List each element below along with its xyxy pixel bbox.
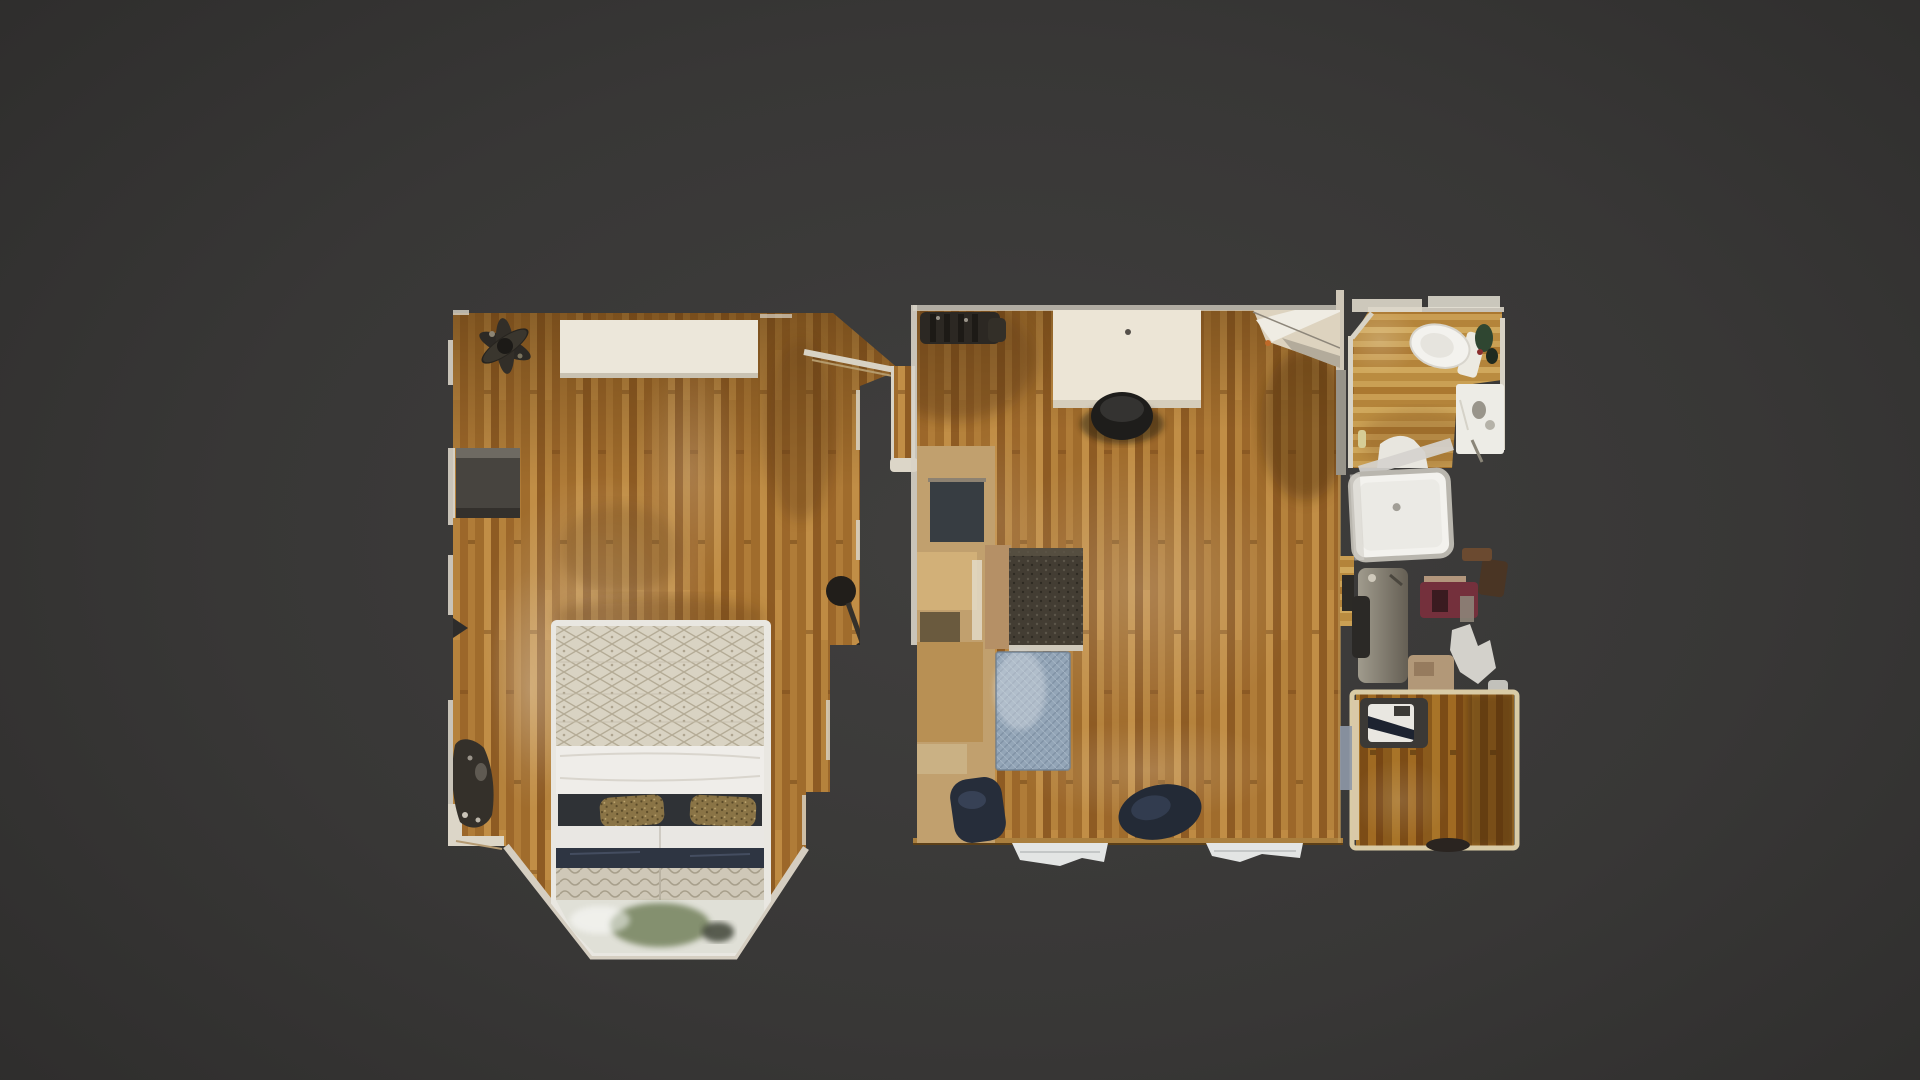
sewing-machine — [1368, 704, 1414, 742]
armchair — [985, 545, 1083, 651]
scan-fragments — [1408, 548, 1508, 702]
floor-mat — [1360, 698, 1428, 748]
bathtub — [1350, 469, 1452, 560]
hanging-clothes — [1420, 576, 1478, 622]
queen-bed — [551, 620, 771, 956]
accent-pillow-right — [689, 794, 756, 827]
walkin-left-trim — [1352, 700, 1359, 840]
dresser-shadow — [560, 373, 758, 378]
accent-pillow-left — [599, 794, 665, 828]
blue-fragment — [1340, 726, 1352, 790]
floor-smudge — [1426, 838, 1470, 852]
dresser — [560, 320, 758, 377]
room-bedroom[interactable] — [448, 310, 903, 956]
bottle — [1358, 430, 1366, 448]
closet-column — [1340, 548, 1508, 702]
window-sill-left — [1012, 843, 1108, 866]
floorplan-canvas[interactable] — [0, 0, 1920, 1080]
storage-cabinet — [1352, 568, 1408, 683]
shoe-row — [920, 312, 1006, 344]
area-rug — [994, 650, 1070, 770]
room-walkin-closet[interactable] — [1340, 692, 1517, 852]
nightstand — [452, 448, 520, 518]
sink-vanity — [1456, 384, 1504, 462]
tv-screen — [930, 480, 984, 542]
room-living[interactable] — [875, 290, 1350, 866]
room-bathroom[interactable] — [1340, 296, 1505, 560]
floorplan-viewer[interactable] — [0, 0, 1920, 1080]
navy-pillow-band — [556, 848, 764, 868]
window-sill-right — [1206, 843, 1303, 862]
